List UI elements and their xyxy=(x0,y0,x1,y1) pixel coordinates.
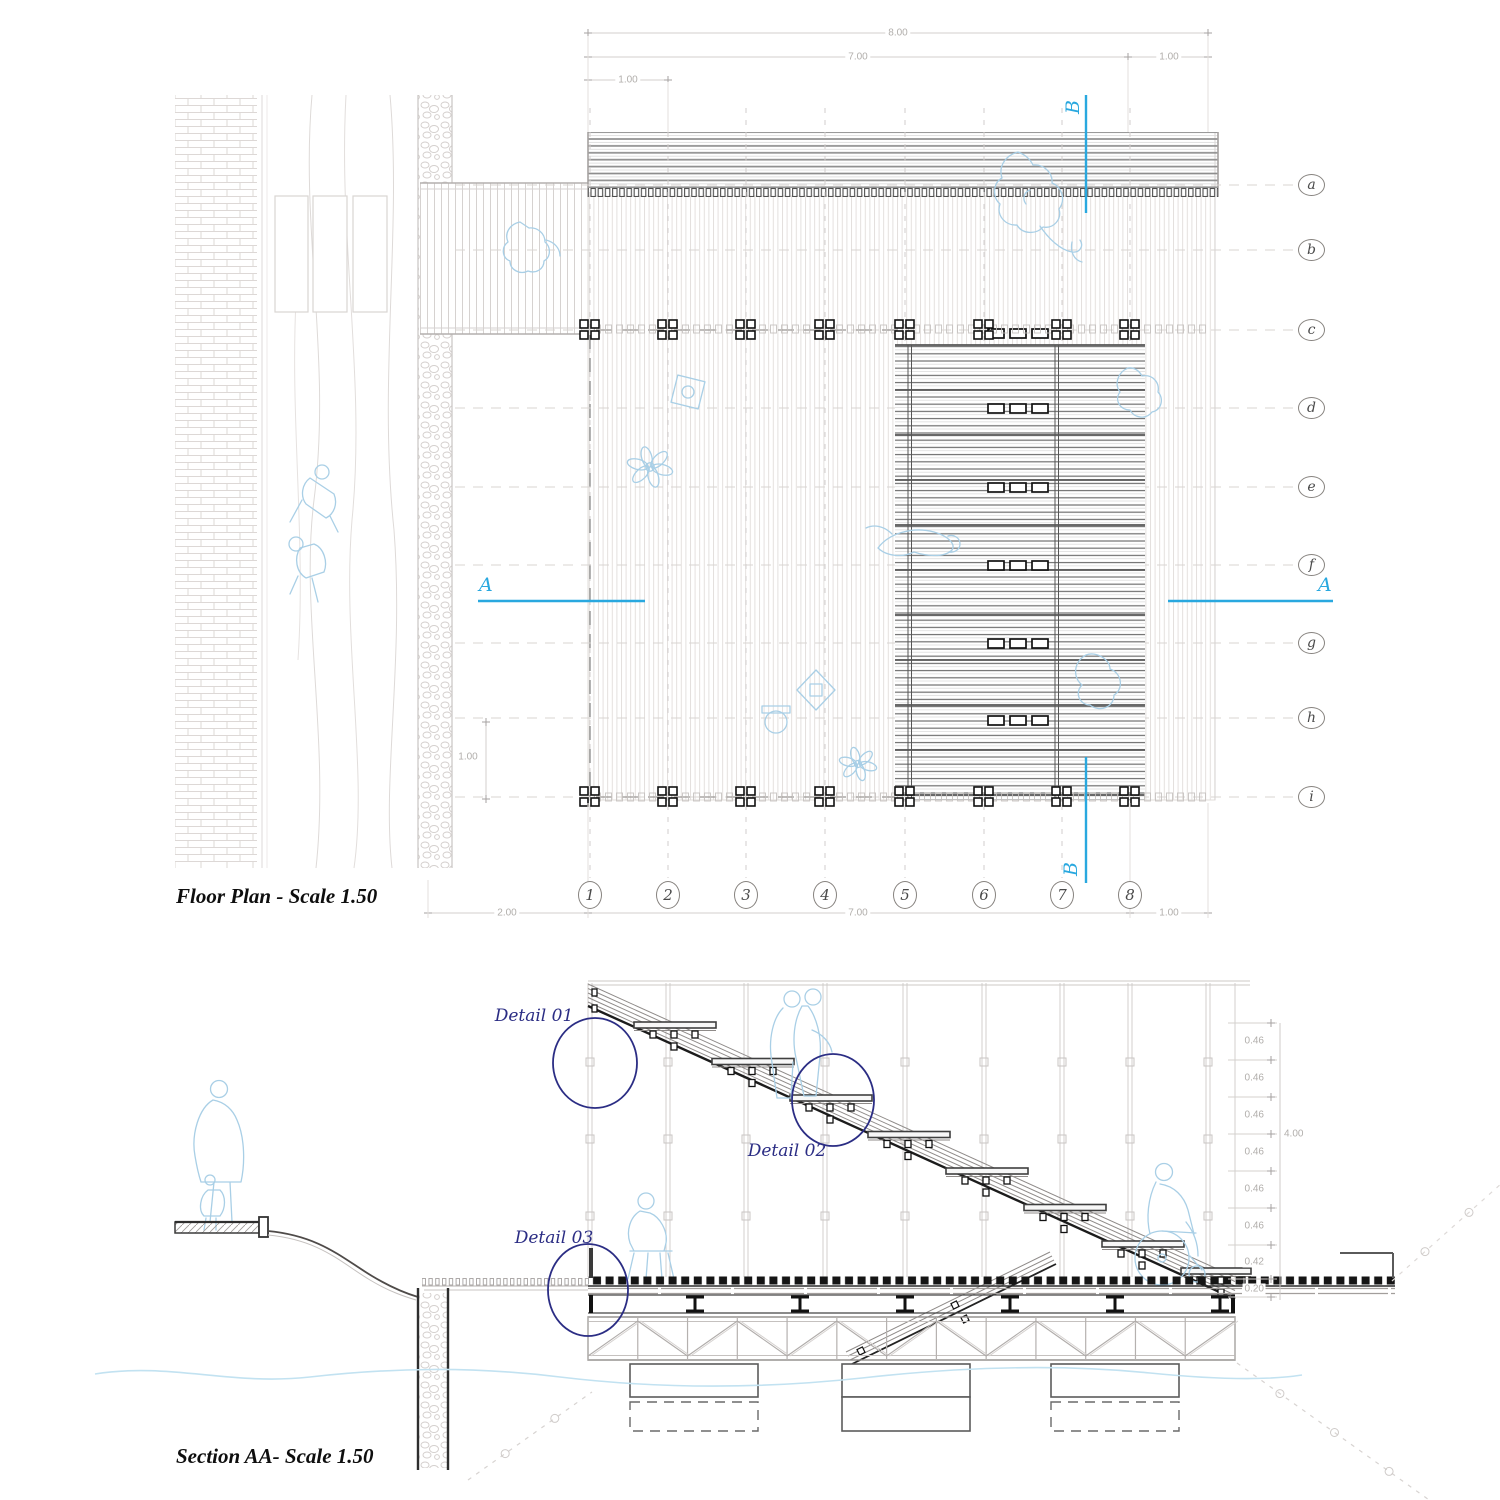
drawing-canvas: Floor Plan - Scale 1.50 Section AA- Scal… xyxy=(0,0,1500,1500)
section-structure xyxy=(588,1295,1238,1431)
sitting-person-section xyxy=(628,1211,674,1279)
standing-person-section xyxy=(194,1100,244,1222)
section-bench-boards xyxy=(634,1022,1251,1296)
person-bank-1 xyxy=(290,478,338,532)
architectural-drawing xyxy=(0,0,1500,1500)
person-bank-2 xyxy=(290,544,326,602)
plan-gangway xyxy=(420,183,588,334)
section-bank xyxy=(175,1183,1500,1500)
wheelchair-person-section xyxy=(1148,1182,1202,1270)
section-frame xyxy=(588,981,1250,1364)
plan-bank xyxy=(175,95,452,868)
plan-roof-slats xyxy=(588,132,1218,197)
section-silhouettes xyxy=(194,989,1205,1285)
